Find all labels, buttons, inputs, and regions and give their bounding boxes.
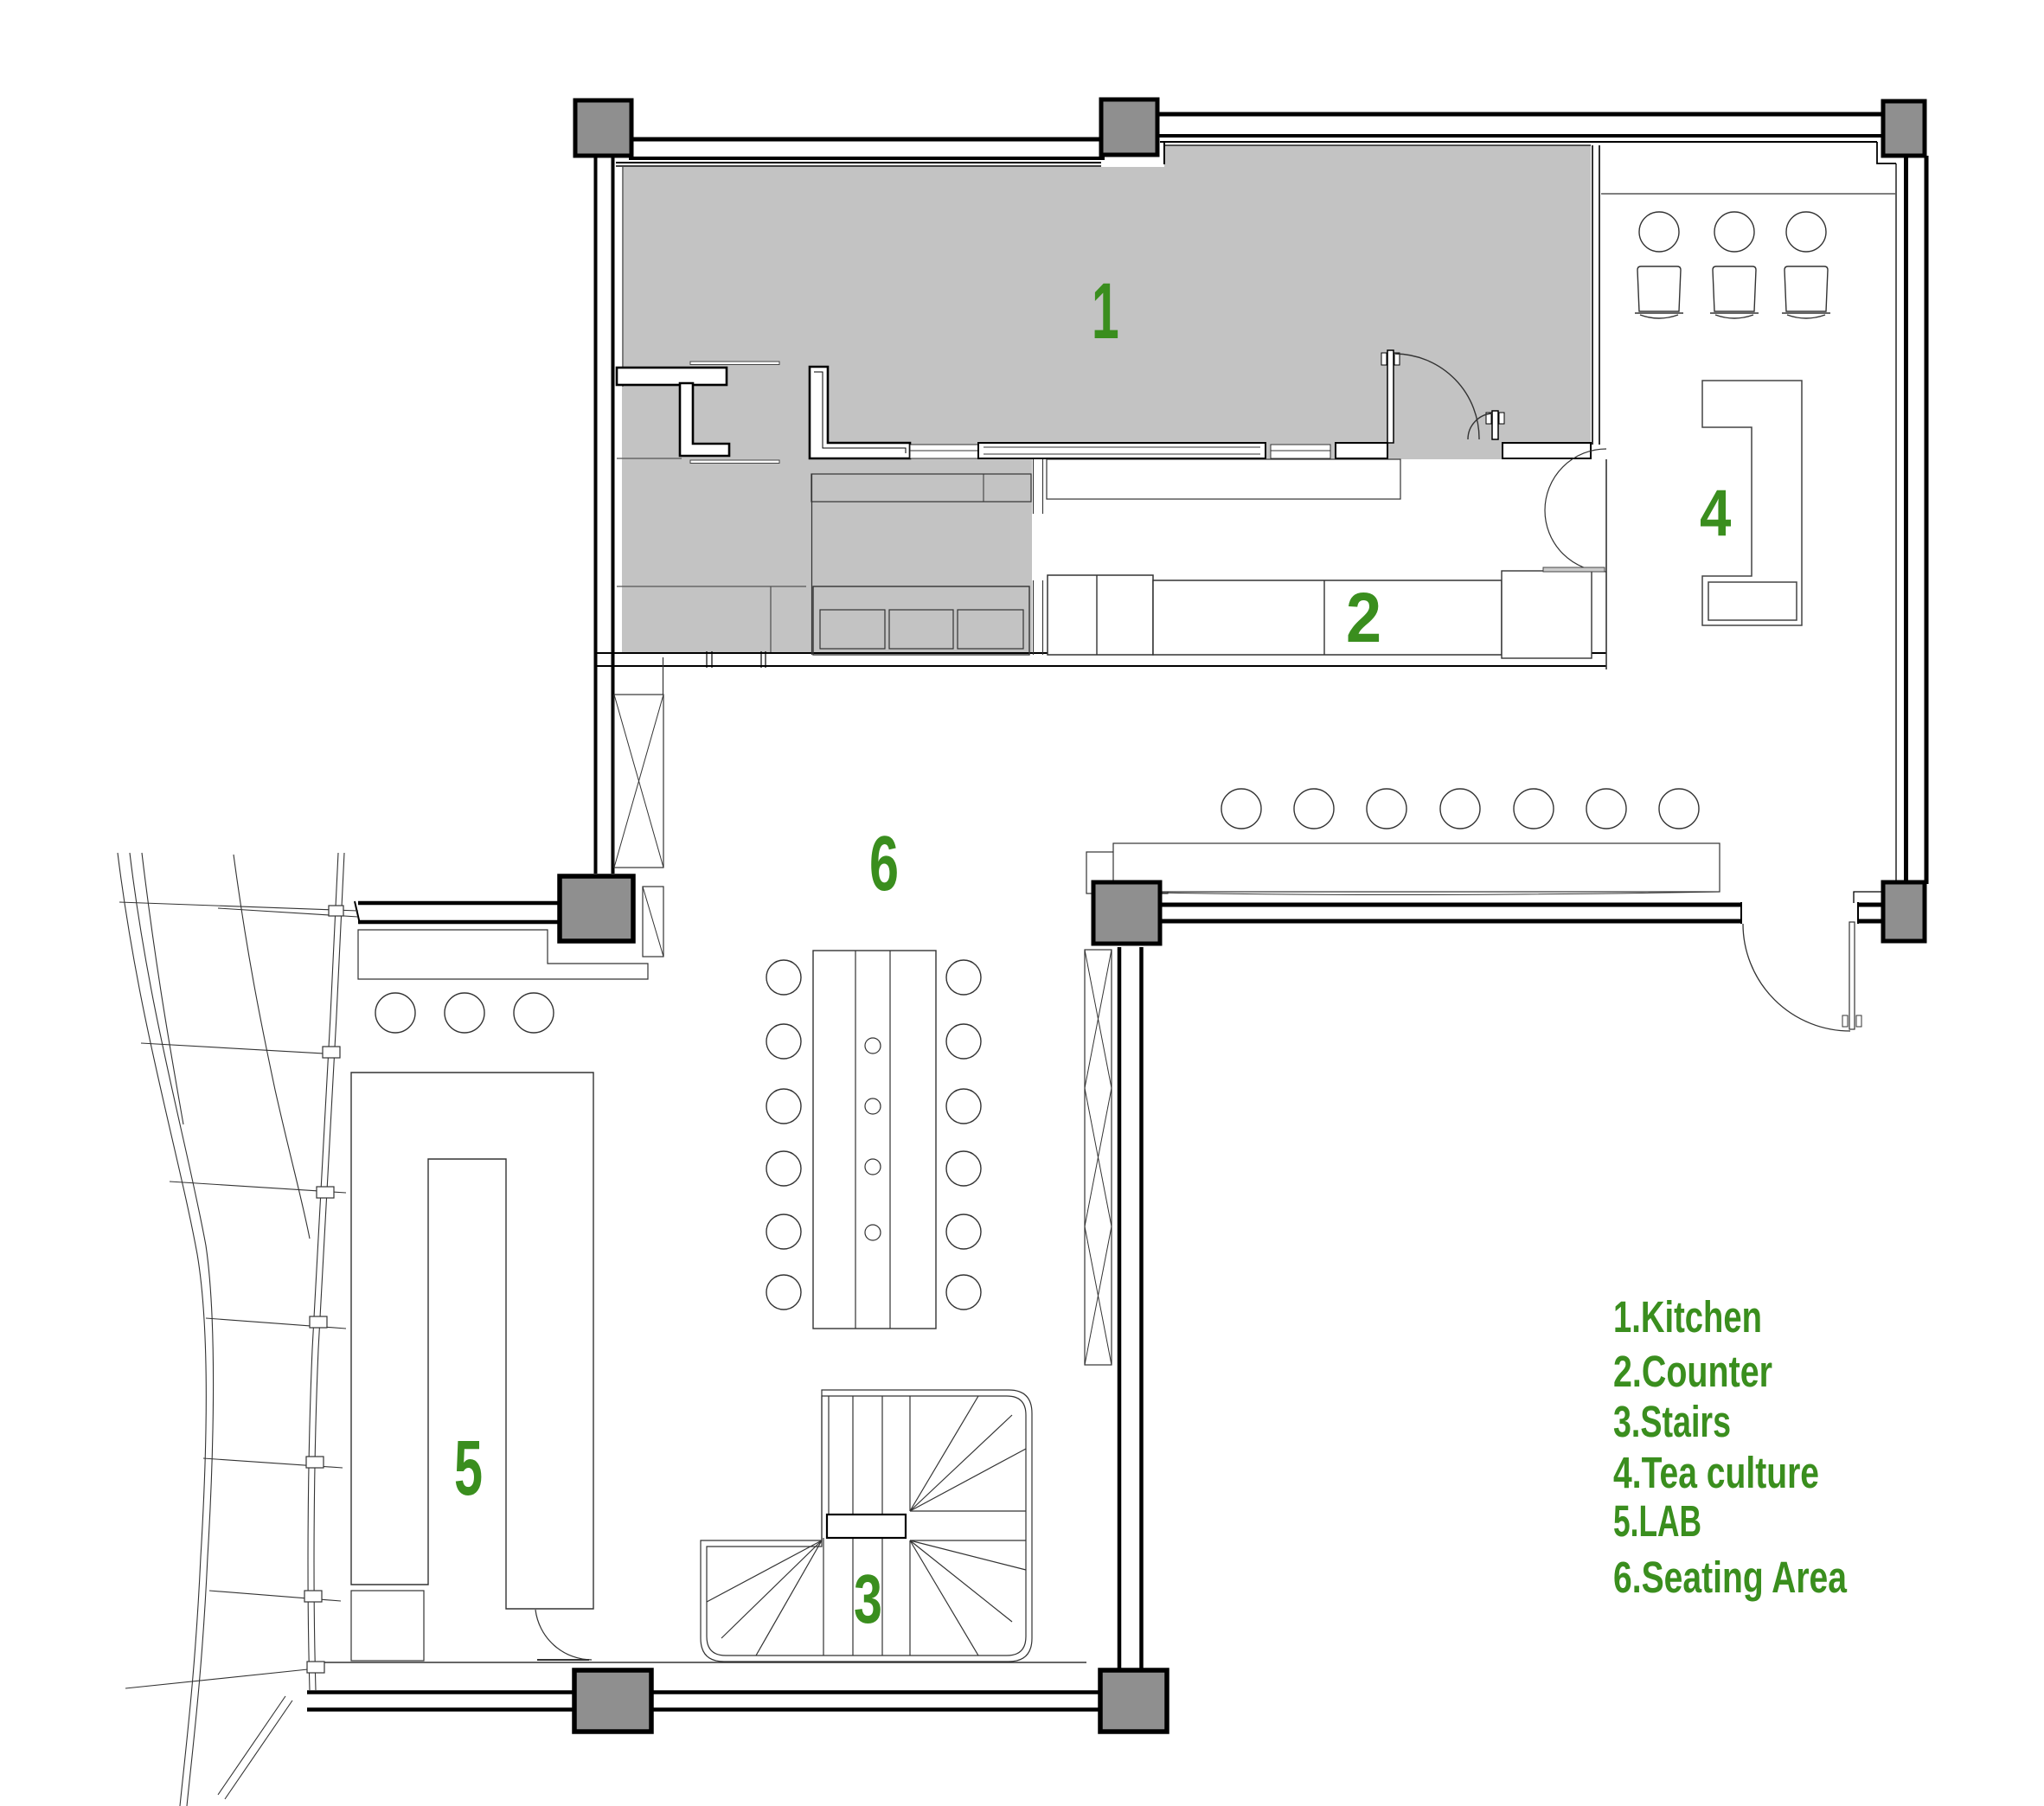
svg-text:2: 2 xyxy=(1346,577,1381,657)
svg-text:5.LAB: 5.LAB xyxy=(1613,1496,1701,1546)
svg-text:4.Tea culture: 4.Tea culture xyxy=(1613,1448,1819,1497)
svg-text:1: 1 xyxy=(1092,267,1119,355)
svg-text:3.Stairs: 3.Stairs xyxy=(1613,1397,1731,1446)
svg-text:4: 4 xyxy=(1700,477,1732,550)
svg-text:1.Kitchen: 1.Kitchen xyxy=(1613,1292,1762,1342)
svg-text:6: 6 xyxy=(869,820,899,907)
svg-text:3: 3 xyxy=(854,1559,882,1637)
svg-text:5: 5 xyxy=(454,1425,483,1512)
svg-text:2.Counter: 2.Counter xyxy=(1613,1347,1772,1396)
svg-text:6.Seating Area: 6.Seating Area xyxy=(1613,1553,1847,1602)
